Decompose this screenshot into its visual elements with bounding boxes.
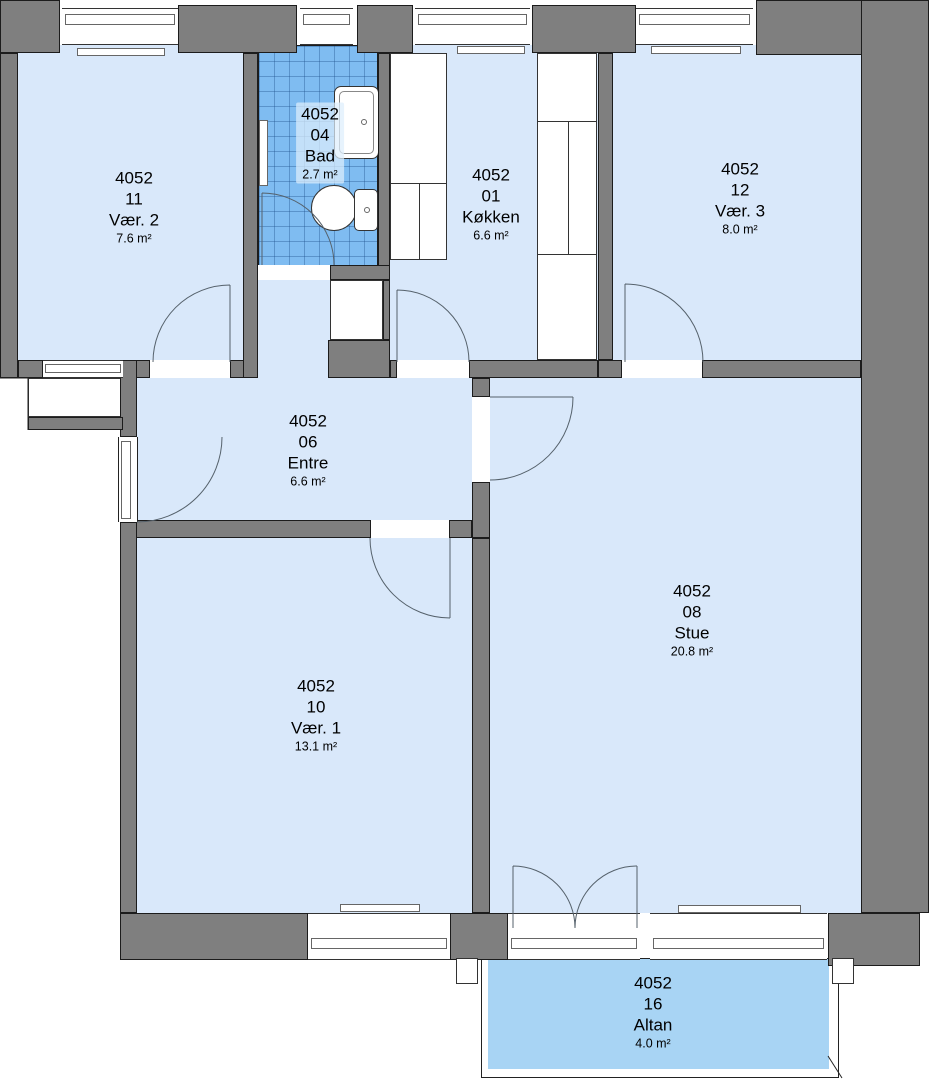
- wall: [702, 360, 861, 378]
- room-unit: 4052: [291, 676, 341, 697]
- room-number: 01: [462, 186, 520, 207]
- room-name: Stue: [671, 623, 713, 644]
- radiator: [651, 46, 741, 54]
- wall: [28, 417, 123, 430]
- room-name: Bad: [301, 146, 339, 167]
- radiator: [457, 46, 525, 54]
- room-area: 2.7 m²: [301, 167, 339, 183]
- towel-radiator: [259, 120, 268, 186]
- door-opening: [473, 397, 489, 482]
- room-label-vaer3: 4052 12 Vær. 3 8.0 m²: [715, 159, 765, 238]
- room-unit: 4052: [301, 104, 339, 125]
- floor-plan: 4052 11 Vær. 2 7.6 m² 4052 04 Bad 2.7 m²…: [0, 0, 929, 1080]
- balcony-post: [832, 958, 854, 984]
- room-label-altan: 4052 16 Altan 4.0 m²: [634, 973, 673, 1052]
- wall: [532, 5, 636, 53]
- window: [308, 913, 450, 960]
- wall: [450, 913, 508, 960]
- wall: [120, 522, 137, 913]
- sink-drain: [361, 119, 367, 125]
- wall: [469, 360, 598, 378]
- room-label-stue: 4052 08 Stue 20.8 m²: [671, 581, 713, 660]
- sink-basin: [339, 91, 374, 154]
- room-number: 06: [288, 432, 329, 453]
- room-label-vaer2: 4052 11 Vær. 2 7.6 m²: [109, 168, 159, 247]
- shaft-closet: [330, 280, 383, 340]
- wall: [357, 5, 413, 53]
- door-opening: [258, 265, 330, 280]
- room-unit: 4052: [715, 159, 765, 180]
- room-unit: 4052: [462, 165, 520, 186]
- room-number: 12: [715, 180, 765, 201]
- toilet-tank: [354, 189, 378, 231]
- wall: [0, 0, 60, 53]
- kitchen-cabinets-right: [537, 53, 597, 360]
- room-name: Vær. 1: [291, 718, 341, 739]
- wall: [383, 280, 390, 340]
- window: [415, 8, 530, 45]
- wall: [330, 265, 390, 280]
- window: [636, 8, 753, 45]
- room-label-koekken: 4052 01 Køkken 6.6 m²: [462, 165, 520, 244]
- room-unit: 4052: [671, 581, 713, 602]
- balcony-door-threshold: [508, 913, 640, 960]
- wall: [18, 360, 43, 378]
- room-area: 7.6 m²: [109, 231, 159, 247]
- room-label-entre: 4052 06 Entre 6.6 m²: [288, 411, 329, 490]
- room-number: 08: [671, 602, 713, 623]
- room-name: Vær. 3: [715, 201, 765, 222]
- cabinet-divider: [538, 121, 596, 122]
- window: [650, 913, 827, 960]
- door-opening: [397, 361, 469, 378]
- radiator: [340, 904, 420, 912]
- room-number: 04: [301, 125, 339, 146]
- counter-divider: [419, 183, 420, 259]
- door-opening: [150, 361, 230, 378]
- toilet-bowl: [311, 185, 357, 231]
- balcony-post: [456, 958, 478, 984]
- entry-alcove: [28, 378, 123, 417]
- room-unit: 4052: [288, 411, 329, 432]
- room-label-bad: 4052 04 Bad 2.7 m²: [296, 103, 344, 184]
- room-number: 11: [109, 189, 159, 210]
- cabinet-divider: [538, 254, 596, 255]
- room-name: Køkken: [462, 207, 520, 228]
- room-name: Entre: [288, 453, 329, 474]
- window: [300, 8, 353, 45]
- room-area: 13.1 m²: [291, 739, 341, 755]
- wall: [120, 913, 308, 960]
- wall: [472, 538, 490, 913]
- door-opening: [622, 361, 702, 378]
- room-name: Vær. 2: [109, 210, 159, 231]
- wall: [378, 53, 390, 280]
- door-opening: [371, 521, 449, 537]
- room-name: Altan: [634, 1015, 673, 1036]
- room-number: 10: [291, 697, 341, 718]
- wall: [120, 520, 371, 538]
- kitchen-counter-left: [390, 53, 447, 260]
- wall: [598, 53, 613, 360]
- wall: [178, 5, 297, 53]
- room-label-vaer1: 4052 10 Vær. 1 13.1 m²: [291, 676, 341, 755]
- toilet-flush: [364, 207, 370, 213]
- wall: [598, 360, 622, 378]
- room-area: 6.6 m²: [462, 228, 520, 244]
- wall: [472, 482, 490, 538]
- room-unit: 4052: [634, 973, 673, 994]
- room-area: 4.0 m²: [634, 1036, 673, 1052]
- radiator: [77, 48, 165, 56]
- wall: [449, 520, 472, 538]
- entrance-door-panel: [121, 441, 131, 519]
- cabinet-divider: [568, 121, 569, 254]
- wall: [472, 378, 490, 397]
- room-unit: 4052: [109, 168, 159, 189]
- window: [43, 360, 123, 378]
- room-number: 16: [634, 994, 673, 1015]
- floor-entre-corridor: [258, 280, 330, 378]
- wall: [328, 340, 390, 378]
- wall: [243, 53, 258, 378]
- radiator: [678, 905, 801, 913]
- room-area: 20.8 m²: [671, 644, 713, 660]
- window: [62, 8, 178, 45]
- wall: [861, 0, 929, 913]
- room-area: 8.0 m²: [715, 222, 765, 238]
- wall: [390, 360, 397, 378]
- wall: [0, 53, 18, 378]
- room-area: 6.6 m²: [288, 474, 329, 490]
